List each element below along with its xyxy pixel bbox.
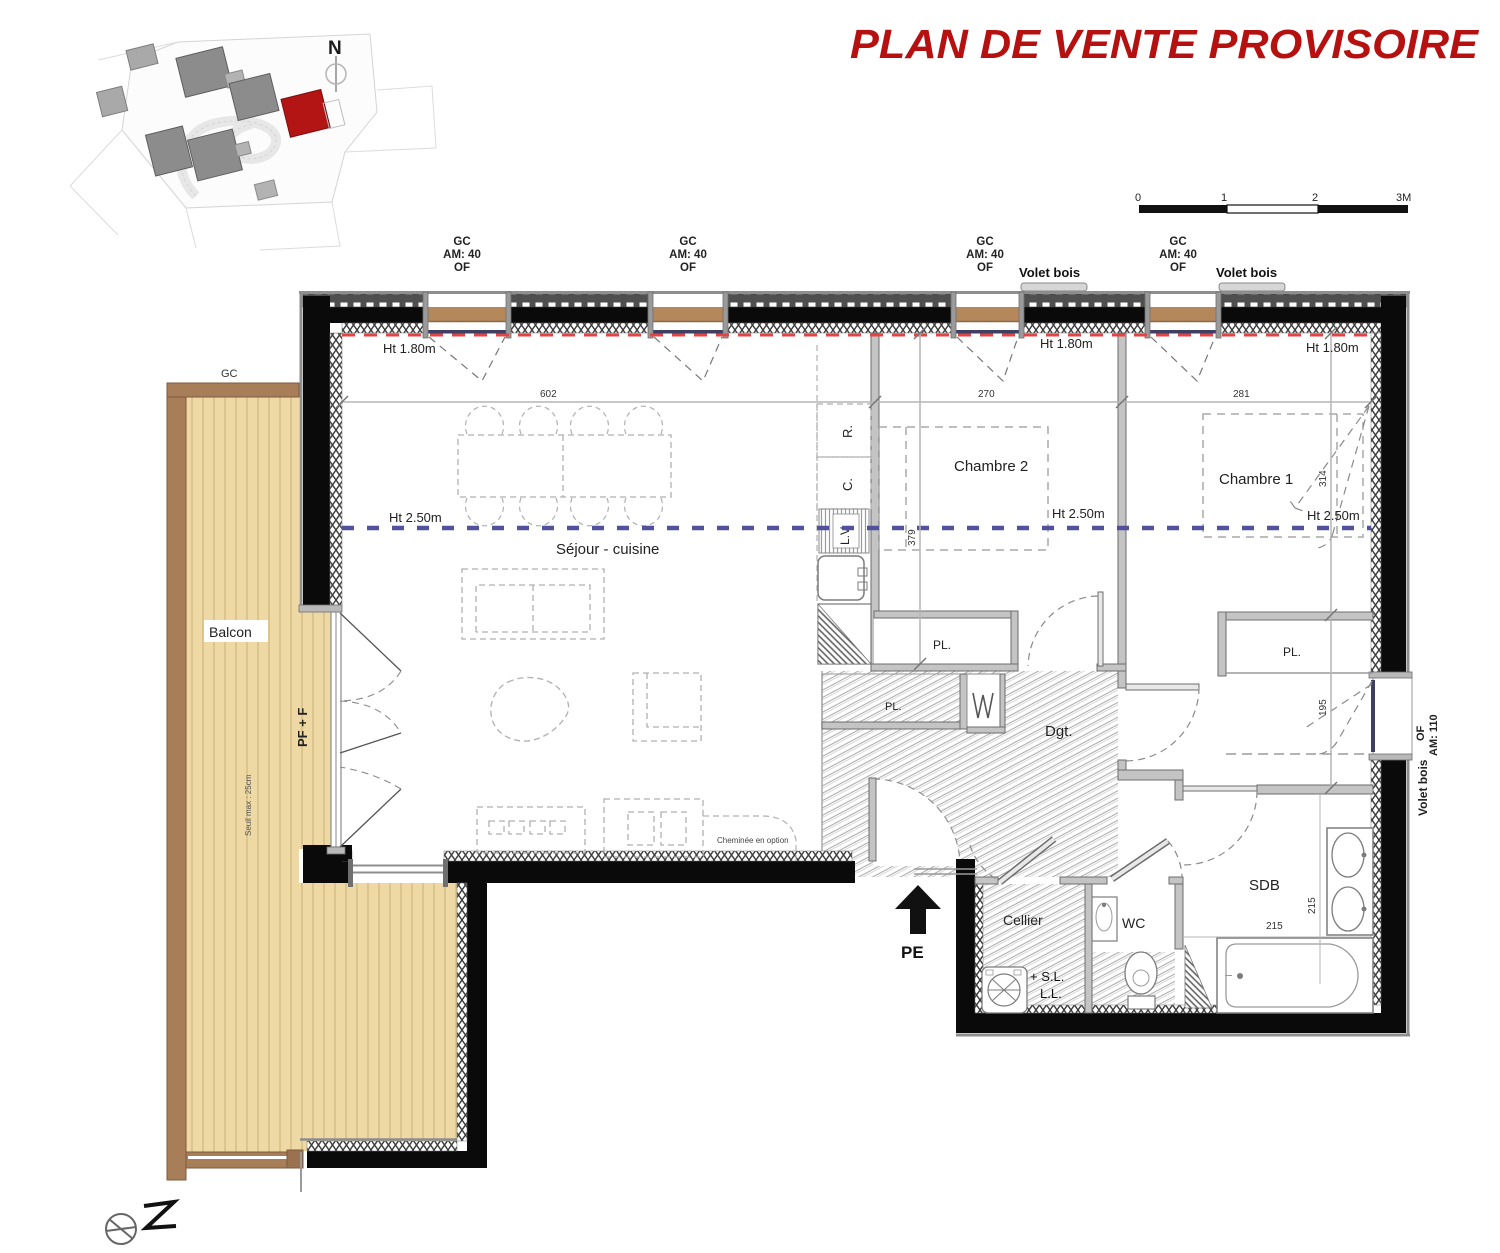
svg-text:195: 195 — [1318, 699, 1329, 716]
svg-text:PL.: PL. — [933, 638, 951, 652]
svg-text:AM: 110: AM: 110 — [1428, 714, 1440, 756]
svg-text:215: 215 — [1307, 897, 1318, 914]
svg-text:1: 1 — [1221, 192, 1227, 204]
svg-text:379: 379 — [907, 529, 918, 546]
svg-text:WC: WC — [1122, 915, 1145, 931]
svg-text:GC: GC — [679, 236, 696, 248]
svg-text:OF: OF — [1415, 725, 1427, 741]
svg-text:PL.: PL. — [885, 701, 902, 713]
svg-text:GC: GC — [453, 236, 470, 248]
svg-text:215: 215 — [1266, 921, 1283, 932]
svg-text:OF: OF — [454, 262, 470, 274]
svg-text:Ht 1.80m: Ht 1.80m — [383, 341, 436, 356]
svg-text:AM: 40: AM: 40 — [669, 249, 707, 261]
svg-text:+ S.L.: + S.L. — [1030, 969, 1064, 984]
svg-text:270: 270 — [978, 389, 995, 400]
svg-text:602: 602 — [540, 389, 557, 400]
svg-text:Cellier: Cellier — [1003, 912, 1043, 928]
svg-text:Séjour - cuisine: Séjour - cuisine — [556, 541, 659, 558]
svg-text:2: 2 — [1312, 192, 1318, 204]
svg-text:Chambre 2: Chambre 2 — [954, 458, 1028, 475]
svg-text:OF: OF — [1170, 262, 1186, 274]
svg-text:Ht 2.50m: Ht 2.50m — [389, 510, 442, 525]
svg-text:PLAN DE VENTE PROVISOIRE: PLAN DE VENTE PROVISOIRE — [850, 21, 1480, 67]
svg-text:OF: OF — [977, 262, 993, 274]
svg-text:Balcon: Balcon — [209, 624, 252, 640]
svg-text:Volet bois: Volet bois — [1019, 265, 1080, 280]
svg-text:281: 281 — [1233, 389, 1250, 400]
svg-text:Ht 1.80m: Ht 1.80m — [1040, 336, 1093, 351]
svg-text:3M: 3M — [1396, 192, 1411, 204]
svg-text:OF: OF — [680, 262, 696, 274]
svg-text:Seuil max : 25cm: Seuil max : 25cm — [244, 774, 253, 836]
svg-text:314: 314 — [1318, 470, 1329, 487]
svg-text:Dgt.: Dgt. — [1045, 723, 1073, 740]
svg-text:AM: 40: AM: 40 — [1159, 249, 1197, 261]
svg-text:N: N — [328, 38, 342, 59]
svg-text:L.L.: L.L. — [1040, 986, 1062, 1001]
svg-text:SDB: SDB — [1249, 877, 1280, 894]
svg-text:GC: GC — [976, 236, 993, 248]
svg-text:Ht 1.80m: Ht 1.80m — [1306, 340, 1359, 355]
svg-text:GC: GC — [221, 368, 238, 380]
svg-text:Volet bois: Volet bois — [1216, 265, 1277, 280]
svg-text:PL.: PL. — [1283, 645, 1301, 659]
svg-text:GC: GC — [1169, 236, 1186, 248]
svg-text:Ht 2.50m: Ht 2.50m — [1307, 508, 1360, 523]
svg-text:PE: PE — [901, 943, 924, 962]
svg-text:C.: C. — [840, 478, 855, 491]
svg-text:Cheminée en option: Cheminée en option — [717, 836, 789, 845]
svg-text:Ht 2.50m: Ht 2.50m — [1052, 506, 1105, 521]
svg-text:R.: R. — [840, 425, 855, 438]
svg-text:PF + F: PF + F — [295, 708, 310, 747]
svg-text:AM: 40: AM: 40 — [966, 249, 1004, 261]
svg-text:Volet bois: Volet bois — [1416, 759, 1430, 816]
svg-text:Chambre 1: Chambre 1 — [1219, 471, 1293, 488]
svg-text:AM: 40: AM: 40 — [443, 249, 481, 261]
svg-text:0: 0 — [1135, 192, 1141, 204]
